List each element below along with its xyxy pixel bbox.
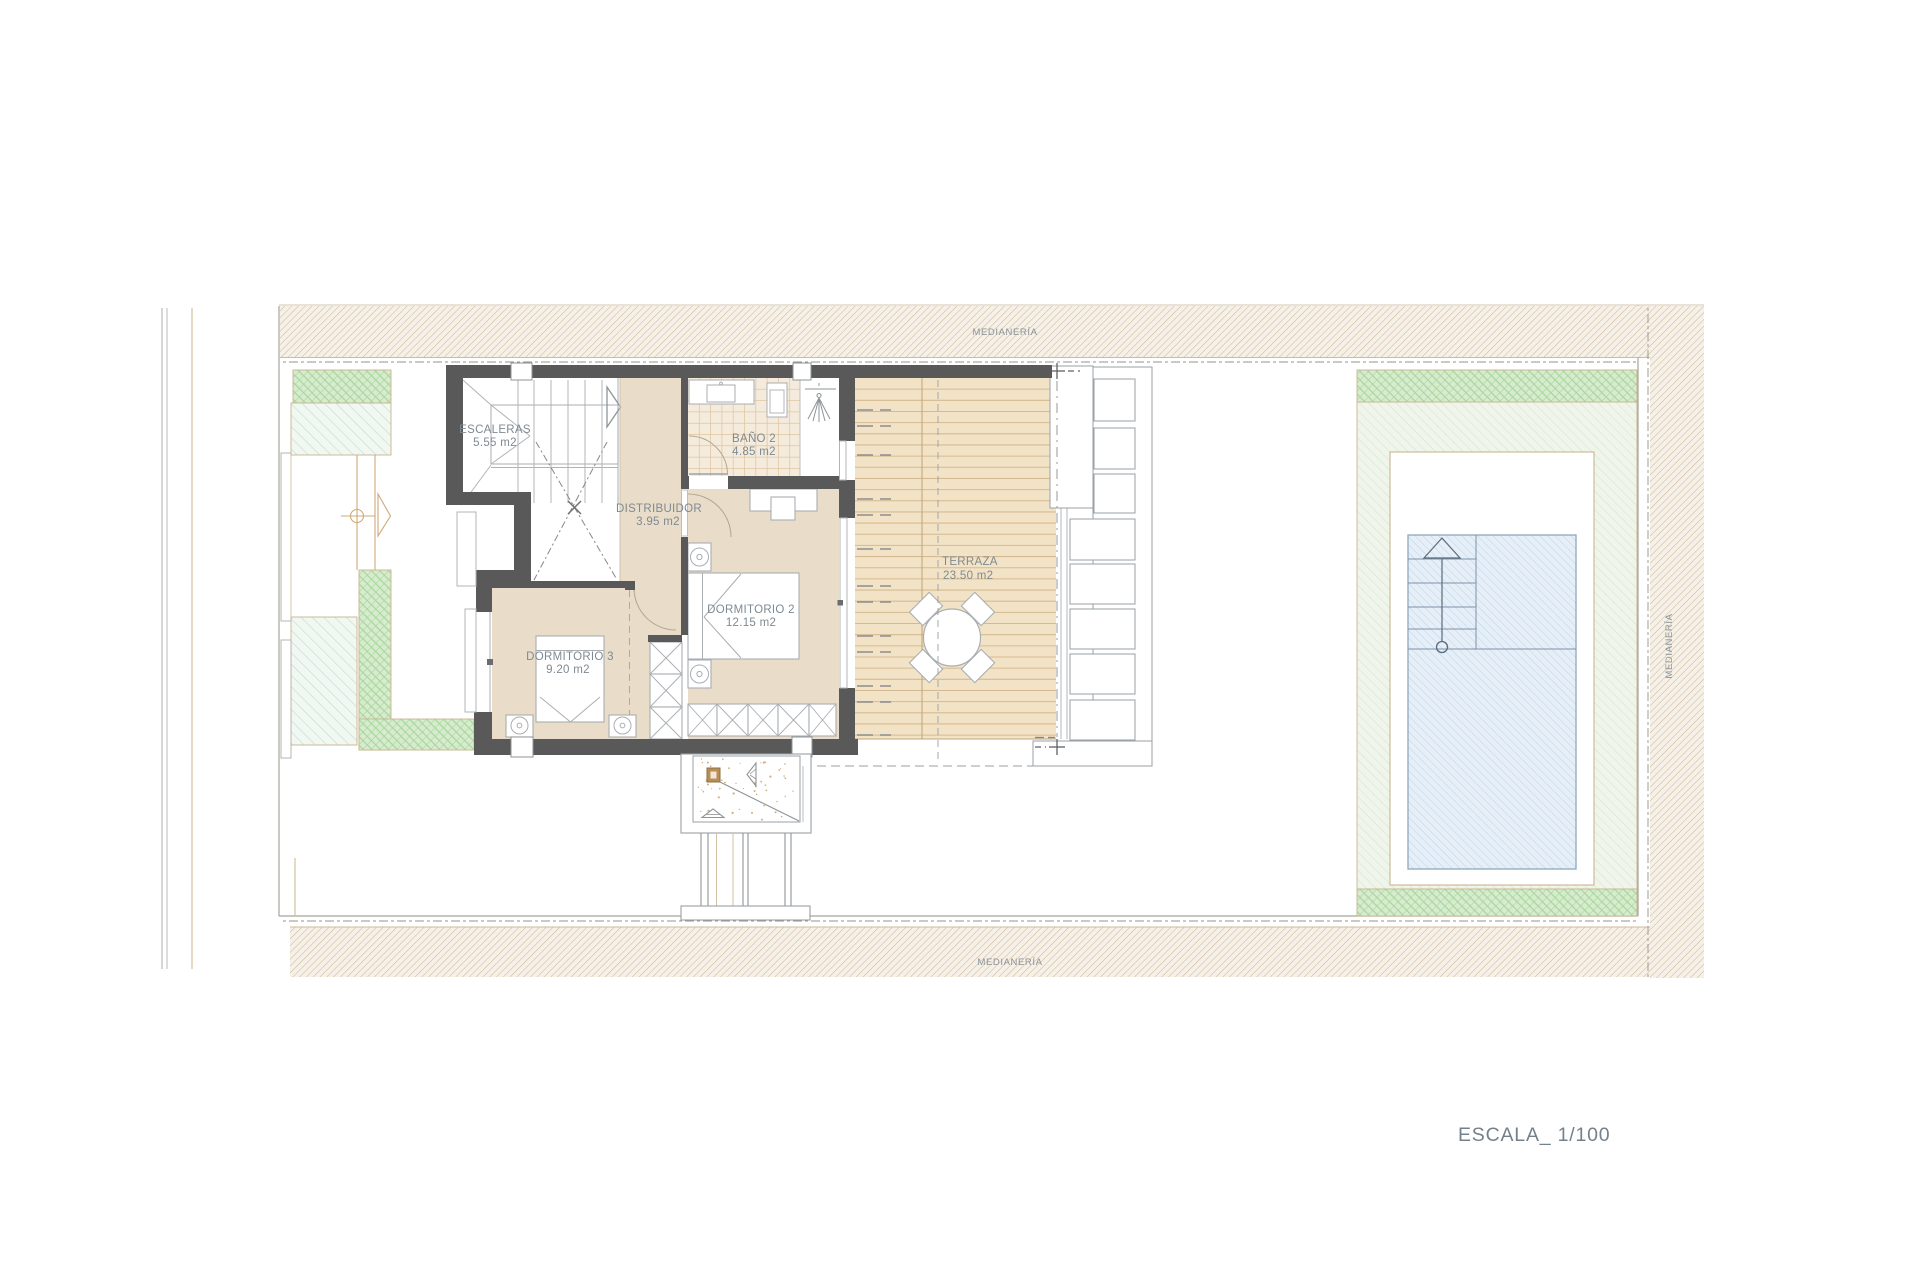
svg-text:12.15 m2: 12.15 m2 <box>726 617 776 629</box>
svg-text:BAÑO 2: BAÑO 2 <box>732 432 776 445</box>
svg-text:MEDIANERÍA: MEDIANERÍA <box>1664 613 1675 678</box>
svg-text:23.50 m2: 23.50 m2 <box>943 570 993 582</box>
svg-text:ESCALA_ 1/100: ESCALA_ 1/100 <box>1458 1124 1610 1146</box>
svg-text:DORMITORIO 2: DORMITORIO 2 <box>707 604 795 616</box>
svg-text:4.85 m2: 4.85 m2 <box>732 446 776 458</box>
svg-text:5.55 m2: 5.55 m2 <box>473 437 517 449</box>
svg-text:DORMITORIO 3: DORMITORIO 3 <box>526 651 614 663</box>
svg-text:MEDIANERÍA: MEDIANERÍA <box>977 957 1042 968</box>
svg-text:9.20 m2: 9.20 m2 <box>546 664 590 676</box>
svg-text:MEDIANERÍA: MEDIANERÍA <box>972 327 1037 338</box>
svg-text:TERRAZA: TERRAZA <box>942 556 998 568</box>
svg-text:ESCALERAS: ESCALERAS <box>459 424 531 436</box>
svg-text:3.95 m2: 3.95 m2 <box>636 516 680 528</box>
svg-text:DISTRIBUIDOR: DISTRIBUIDOR <box>616 503 702 515</box>
